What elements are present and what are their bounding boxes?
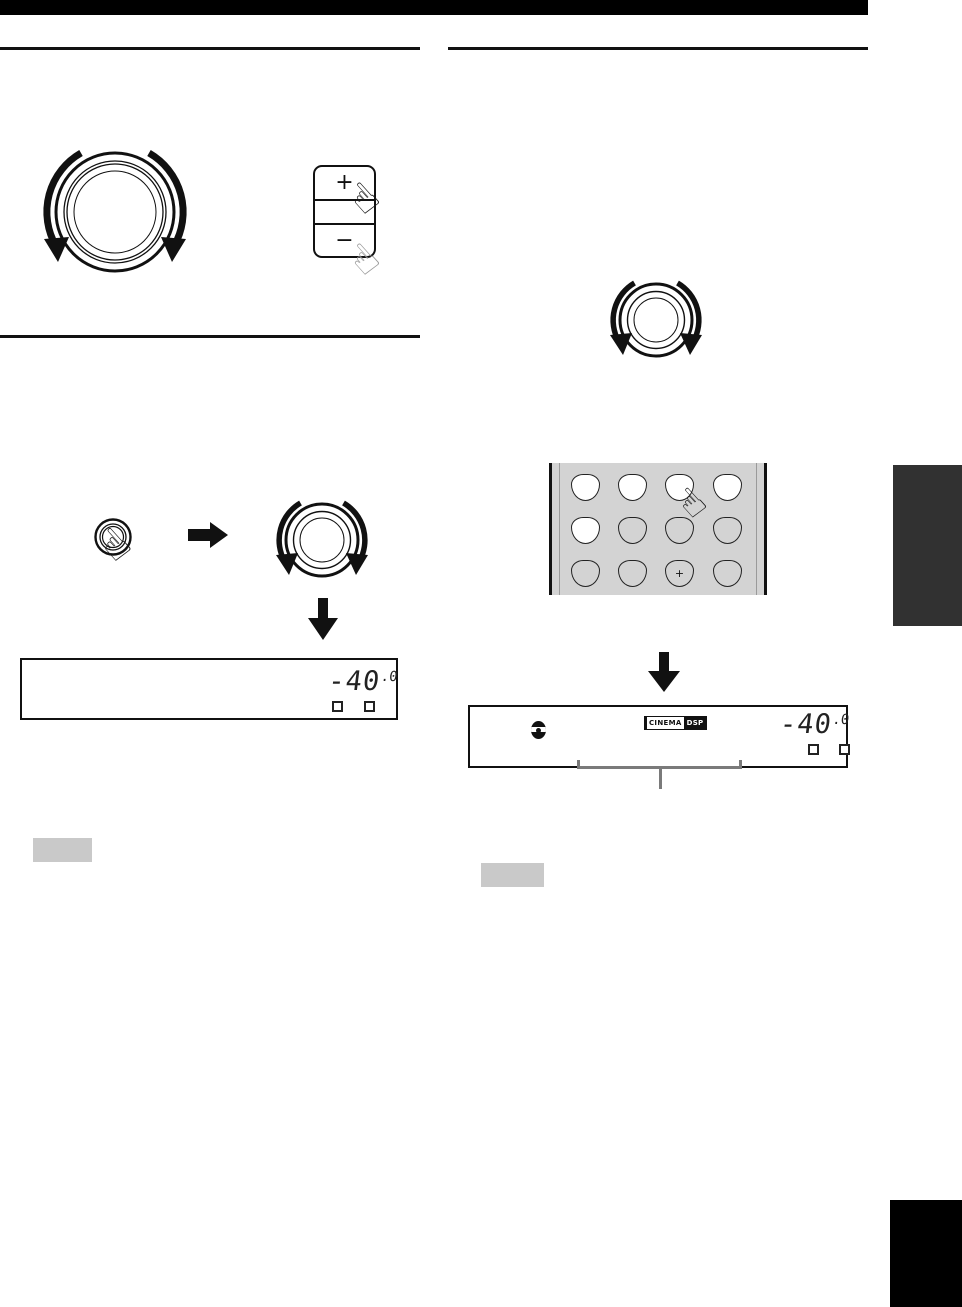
remote-button bbox=[618, 517, 647, 544]
volume-value: -40 bbox=[778, 709, 834, 740]
status-indicator-icon bbox=[531, 721, 546, 739]
remote-button bbox=[665, 517, 694, 544]
header-bar bbox=[0, 0, 868, 15]
note-badge bbox=[33, 838, 92, 862]
remote-button bbox=[618, 474, 647, 501]
remote-button bbox=[618, 560, 647, 587]
remote-button bbox=[571, 474, 600, 501]
section-rule-left-mid bbox=[0, 335, 420, 338]
remote-plus-button: + bbox=[665, 560, 694, 587]
remote-inner-line bbox=[559, 463, 560, 595]
cinema-dsp-logo: CINEMA DSP bbox=[644, 716, 707, 730]
volume-decimal: .0 bbox=[831, 712, 850, 728]
display-indicator-square bbox=[808, 744, 819, 755]
display-indicator-square bbox=[839, 744, 850, 755]
remote-control-panel: + bbox=[549, 463, 767, 595]
volume-value: -40 bbox=[326, 666, 382, 697]
display-indicator-square bbox=[332, 701, 343, 712]
remote-button bbox=[571, 517, 600, 544]
section-rule-left-top bbox=[0, 47, 420, 50]
remote-plus-label: + bbox=[675, 568, 684, 579]
remote-left-edge bbox=[549, 463, 552, 595]
knob-rotate-illustration bbox=[272, 495, 372, 590]
bracket-stem bbox=[659, 766, 662, 789]
cinema-dsp-logo-cinema: CINEMA bbox=[645, 717, 684, 729]
hand-pointer-dashed-icon: ☝ bbox=[342, 237, 387, 283]
remote-button bbox=[713, 517, 742, 544]
section-rule-right-top bbox=[448, 47, 868, 50]
remote-right-edge bbox=[764, 463, 767, 595]
volume-decimal: .0 bbox=[380, 669, 399, 685]
remote-button bbox=[571, 560, 600, 587]
front-display-left: -40.0 bbox=[20, 658, 398, 720]
volume-knob-illustration bbox=[28, 138, 203, 298]
remote-button bbox=[713, 560, 742, 587]
down-arrow-icon bbox=[308, 598, 338, 640]
section-side-tab bbox=[893, 465, 962, 626]
cinema-dsp-logo-dsp: DSP bbox=[684, 717, 707, 729]
remote-button bbox=[713, 474, 742, 501]
note-badge bbox=[481, 863, 544, 887]
page-corner-tab bbox=[890, 1200, 962, 1307]
manual-page: + − ☝ ☝ ☝ -40.0 bbox=[0, 0, 962, 1307]
knob-rotate-illustration bbox=[606, 275, 706, 370]
right-arrow-icon bbox=[188, 522, 228, 548]
volume-readout: -40.0 bbox=[320, 666, 399, 697]
remote-inner-line bbox=[756, 463, 757, 595]
volume-readout: -40.0 bbox=[778, 709, 844, 740]
front-display-right: CINEMA DSP -40.0 bbox=[468, 705, 848, 768]
down-arrow-icon bbox=[648, 652, 680, 692]
display-indicator-square bbox=[364, 701, 375, 712]
